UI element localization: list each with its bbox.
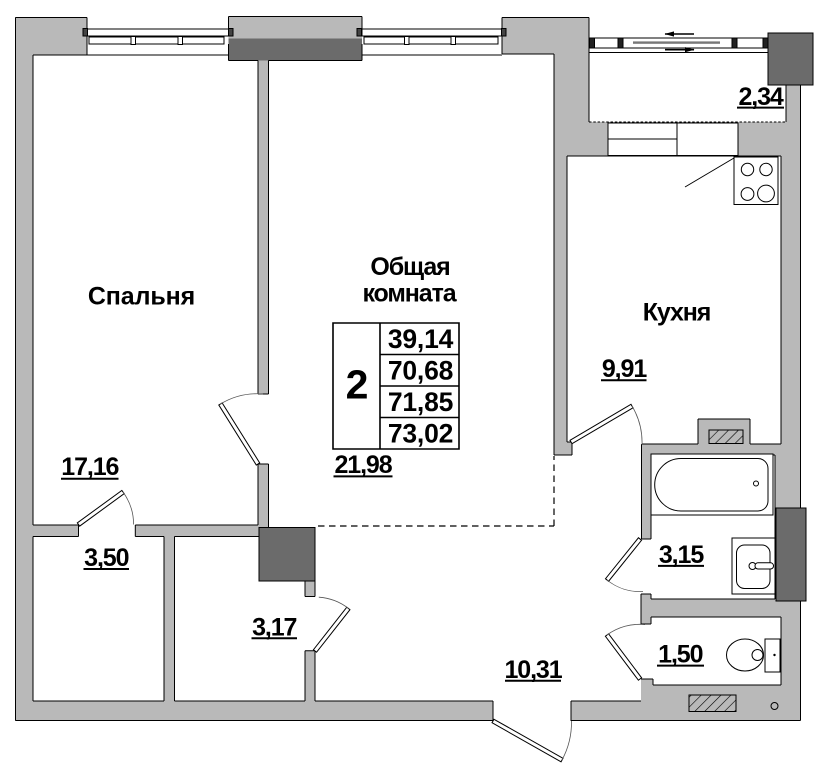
- svg-text:комната: комната: [362, 280, 457, 308]
- svg-text:17,16: 17,16: [61, 453, 118, 481]
- svg-text:Кухня: Кухня: [643, 298, 711, 326]
- svg-text:3,50: 3,50: [84, 544, 128, 572]
- svg-text:2: 2: [346, 362, 369, 408]
- svg-text:10,31: 10,31: [504, 656, 562, 684]
- svg-text:70,68: 70,68: [388, 356, 453, 386]
- svg-text:71,85: 71,85: [388, 387, 453, 417]
- svg-text:3,17: 3,17: [252, 613, 296, 641]
- svg-text:73,02: 73,02: [388, 419, 453, 449]
- svg-text:1,50: 1,50: [658, 641, 702, 669]
- svg-text:3,15: 3,15: [659, 541, 704, 569]
- svg-text:9,91: 9,91: [602, 355, 647, 383]
- svg-text:21,98: 21,98: [334, 451, 392, 479]
- svg-text:Общая: Общая: [370, 253, 449, 281]
- svg-text:39,14: 39,14: [388, 324, 454, 354]
- svg-text:Спальня: Спальня: [88, 282, 195, 310]
